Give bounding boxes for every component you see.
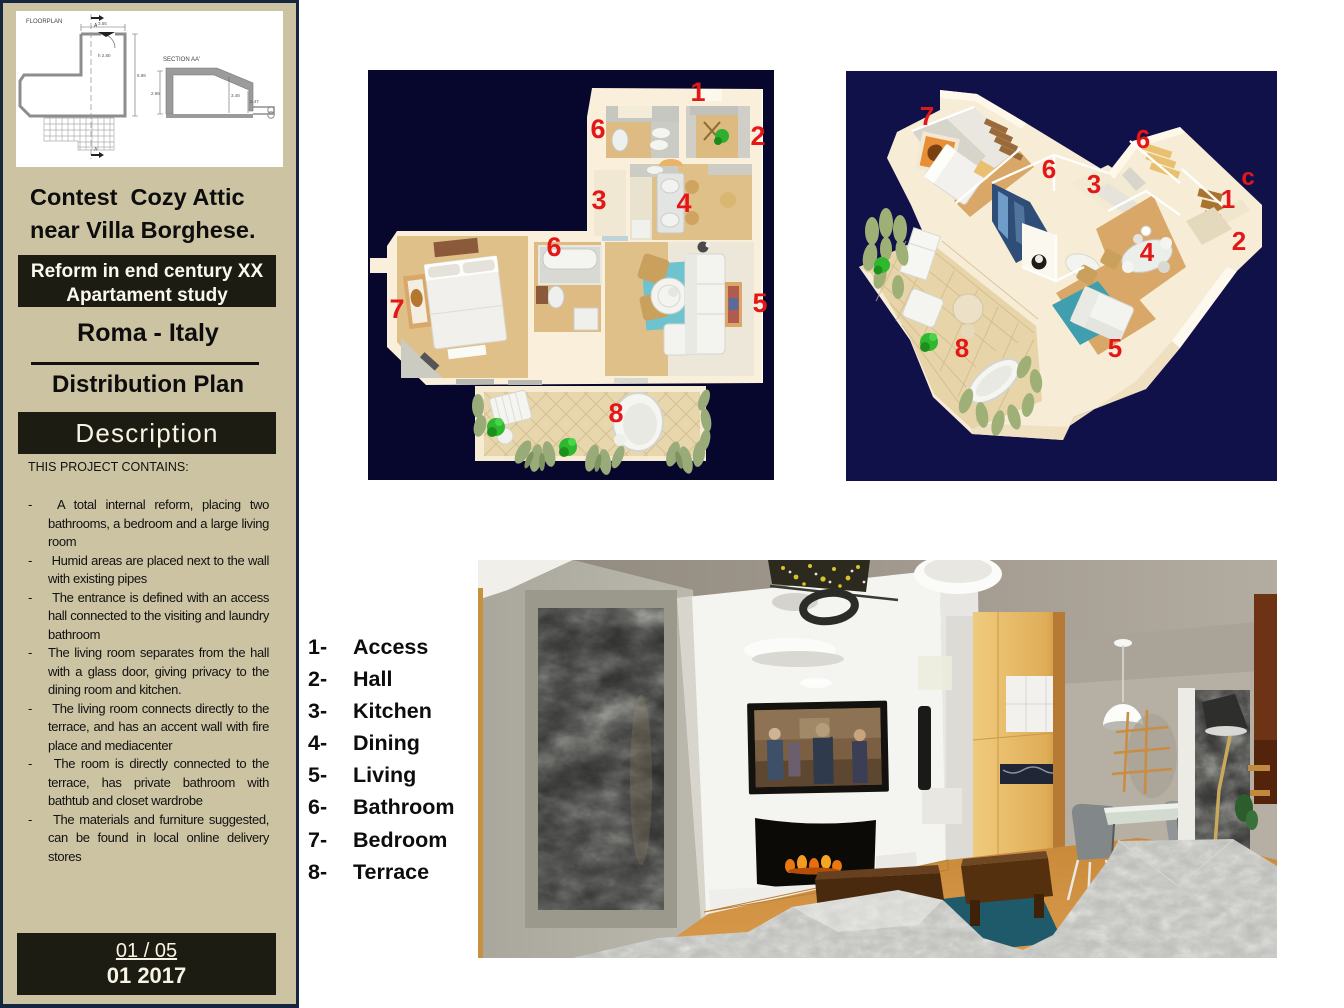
svg-text:c: c bbox=[1241, 164, 1254, 191]
svg-text:8: 8 bbox=[955, 333, 969, 363]
svg-text:5: 5 bbox=[1108, 333, 1122, 363]
svg-text:6: 6 bbox=[1136, 124, 1150, 154]
svg-text:FLOORPLAN: FLOORPLAN bbox=[26, 19, 62, 25]
svg-text:2.96: 2.96 bbox=[151, 91, 160, 96]
svg-text:5: 5 bbox=[752, 288, 767, 318]
svg-text:1: 1 bbox=[690, 77, 705, 107]
svg-text:6: 6 bbox=[590, 114, 605, 144]
svg-text:7: 7 bbox=[389, 294, 404, 324]
svg-text:h 2.80: h 2.80 bbox=[98, 53, 111, 58]
svg-text:2: 2 bbox=[750, 121, 765, 151]
svg-text:3.48: 3.48 bbox=[231, 93, 240, 98]
svg-text:4: 4 bbox=[676, 188, 691, 218]
svg-text:1: 1 bbox=[1221, 184, 1235, 214]
svg-text:6.98: 6.98 bbox=[137, 73, 146, 78]
svg-text:7: 7 bbox=[920, 101, 934, 131]
svg-text:4: 4 bbox=[1140, 237, 1155, 267]
svg-text:6: 6 bbox=[1042, 154, 1056, 184]
svg-text:6: 6 bbox=[546, 232, 561, 262]
svg-text:2.47: 2.47 bbox=[250, 99, 259, 104]
svg-text:3: 3 bbox=[591, 185, 606, 215]
svg-text:3.55: 3.55 bbox=[98, 21, 107, 26]
svg-text:2: 2 bbox=[1232, 226, 1246, 256]
svg-text:3: 3 bbox=[1087, 169, 1101, 199]
svg-text:8: 8 bbox=[608, 398, 623, 428]
svg-text:SECTION AA': SECTION AA' bbox=[163, 57, 200, 63]
